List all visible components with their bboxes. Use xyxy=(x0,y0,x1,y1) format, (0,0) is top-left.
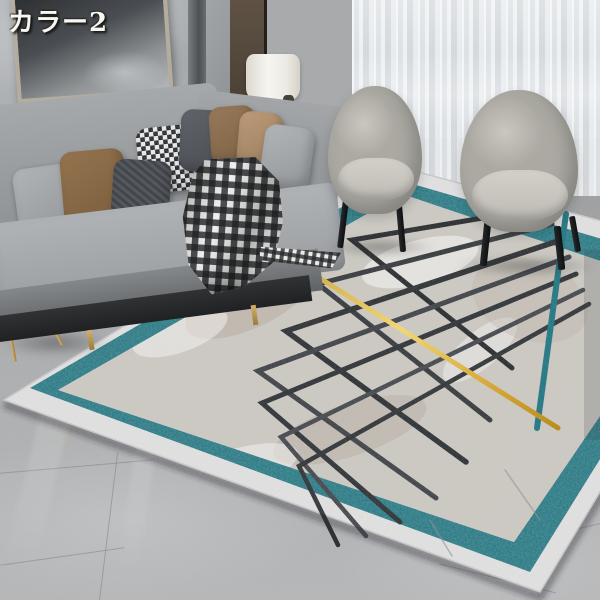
table-lamp-shade xyxy=(246,54,300,100)
armchair-right-cushion xyxy=(472,170,568,220)
chair-shadow xyxy=(456,256,598,276)
curtain-shadow xyxy=(584,250,600,440)
product-photo-living-room: カラー2 xyxy=(0,0,600,600)
armchair-left-cushion xyxy=(338,158,414,200)
color-variant-label: カラー2 xyxy=(8,2,108,39)
